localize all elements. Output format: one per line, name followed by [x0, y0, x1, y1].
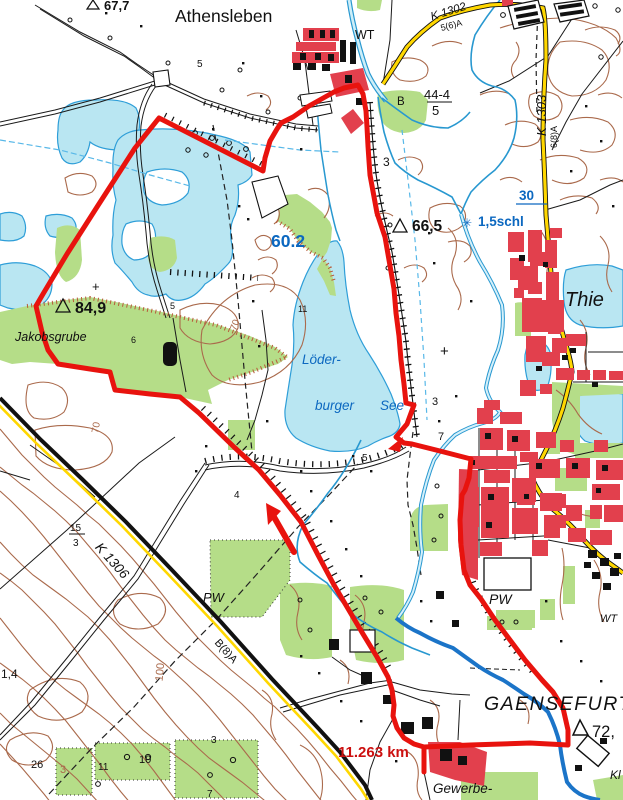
svg-text:44-4: 44-4: [424, 87, 450, 102]
svg-text:66,5: 66,5: [412, 218, 443, 235]
svg-text:67,7: 67,7: [104, 0, 129, 13]
svg-text:84,9: 84,9: [75, 300, 106, 317]
svg-text:5: 5: [170, 301, 175, 311]
svg-text:30: 30: [519, 188, 534, 203]
svg-text:26: 26: [31, 759, 43, 771]
svg-text:100: 100: [154, 662, 168, 681]
svg-text:11.263 km: 11.263 km: [338, 744, 409, 761]
svg-text:6(8)A: 6(8)A: [549, 126, 559, 148]
svg-text:PW: PW: [203, 590, 226, 605]
svg-text:K 1303: K 1303: [534, 94, 549, 136]
svg-text:70: 70: [228, 318, 242, 333]
svg-text:60.2: 60.2: [271, 231, 305, 251]
svg-text:Athensleben: Athensleben: [175, 6, 272, 26]
svg-text:✳: ✳: [462, 216, 472, 230]
svg-text:3: 3: [73, 538, 79, 549]
svg-text:burger: burger: [315, 398, 355, 413]
svg-text:Kl: Kl: [610, 768, 621, 782]
svg-text:5: 5: [197, 59, 203, 70]
svg-text:3: 3: [432, 396, 438, 408]
svg-text:11: 11: [98, 762, 109, 773]
svg-text:+: +: [92, 279, 100, 294]
svg-text:3: 3: [383, 155, 390, 169]
svg-text:15: 15: [70, 523, 82, 534]
svg-text:7: 7: [438, 431, 444, 443]
svg-text:5: 5: [432, 103, 439, 118]
svg-text:GAENSEFURTH: GAENSEFURTH: [484, 693, 623, 715]
svg-text:B: B: [397, 96, 405, 108]
svg-text:4: 4: [234, 490, 240, 501]
svg-text:Jakobsgrube: Jakobsgrube: [14, 330, 87, 344]
svg-text:3: 3: [60, 764, 66, 776]
svg-text:70: 70: [90, 421, 103, 434]
svg-text:7: 7: [207, 789, 213, 800]
svg-text:5: 5: [362, 453, 368, 464]
svg-text:PW: PW: [489, 591, 513, 607]
svg-text:1,5schl: 1,5schl: [478, 214, 524, 229]
svg-text:WT: WT: [600, 613, 618, 625]
svg-text:Thie: Thie: [565, 289, 604, 311]
svg-text:10: 10: [139, 754, 151, 766]
svg-text:1,4: 1,4: [1, 667, 18, 681]
svg-text:Löder-: Löder-: [302, 352, 341, 367]
svg-text:+: +: [440, 343, 449, 360]
svg-text:11: 11: [298, 304, 307, 314]
svg-text:3: 3: [211, 735, 217, 746]
svg-text:6: 6: [131, 335, 136, 345]
svg-text:K 1302: K 1302: [429, 1, 468, 23]
svg-text:WT: WT: [355, 28, 375, 42]
svg-text:Gewerbe-: Gewerbe-: [433, 781, 493, 796]
svg-text:See: See: [380, 398, 404, 413]
